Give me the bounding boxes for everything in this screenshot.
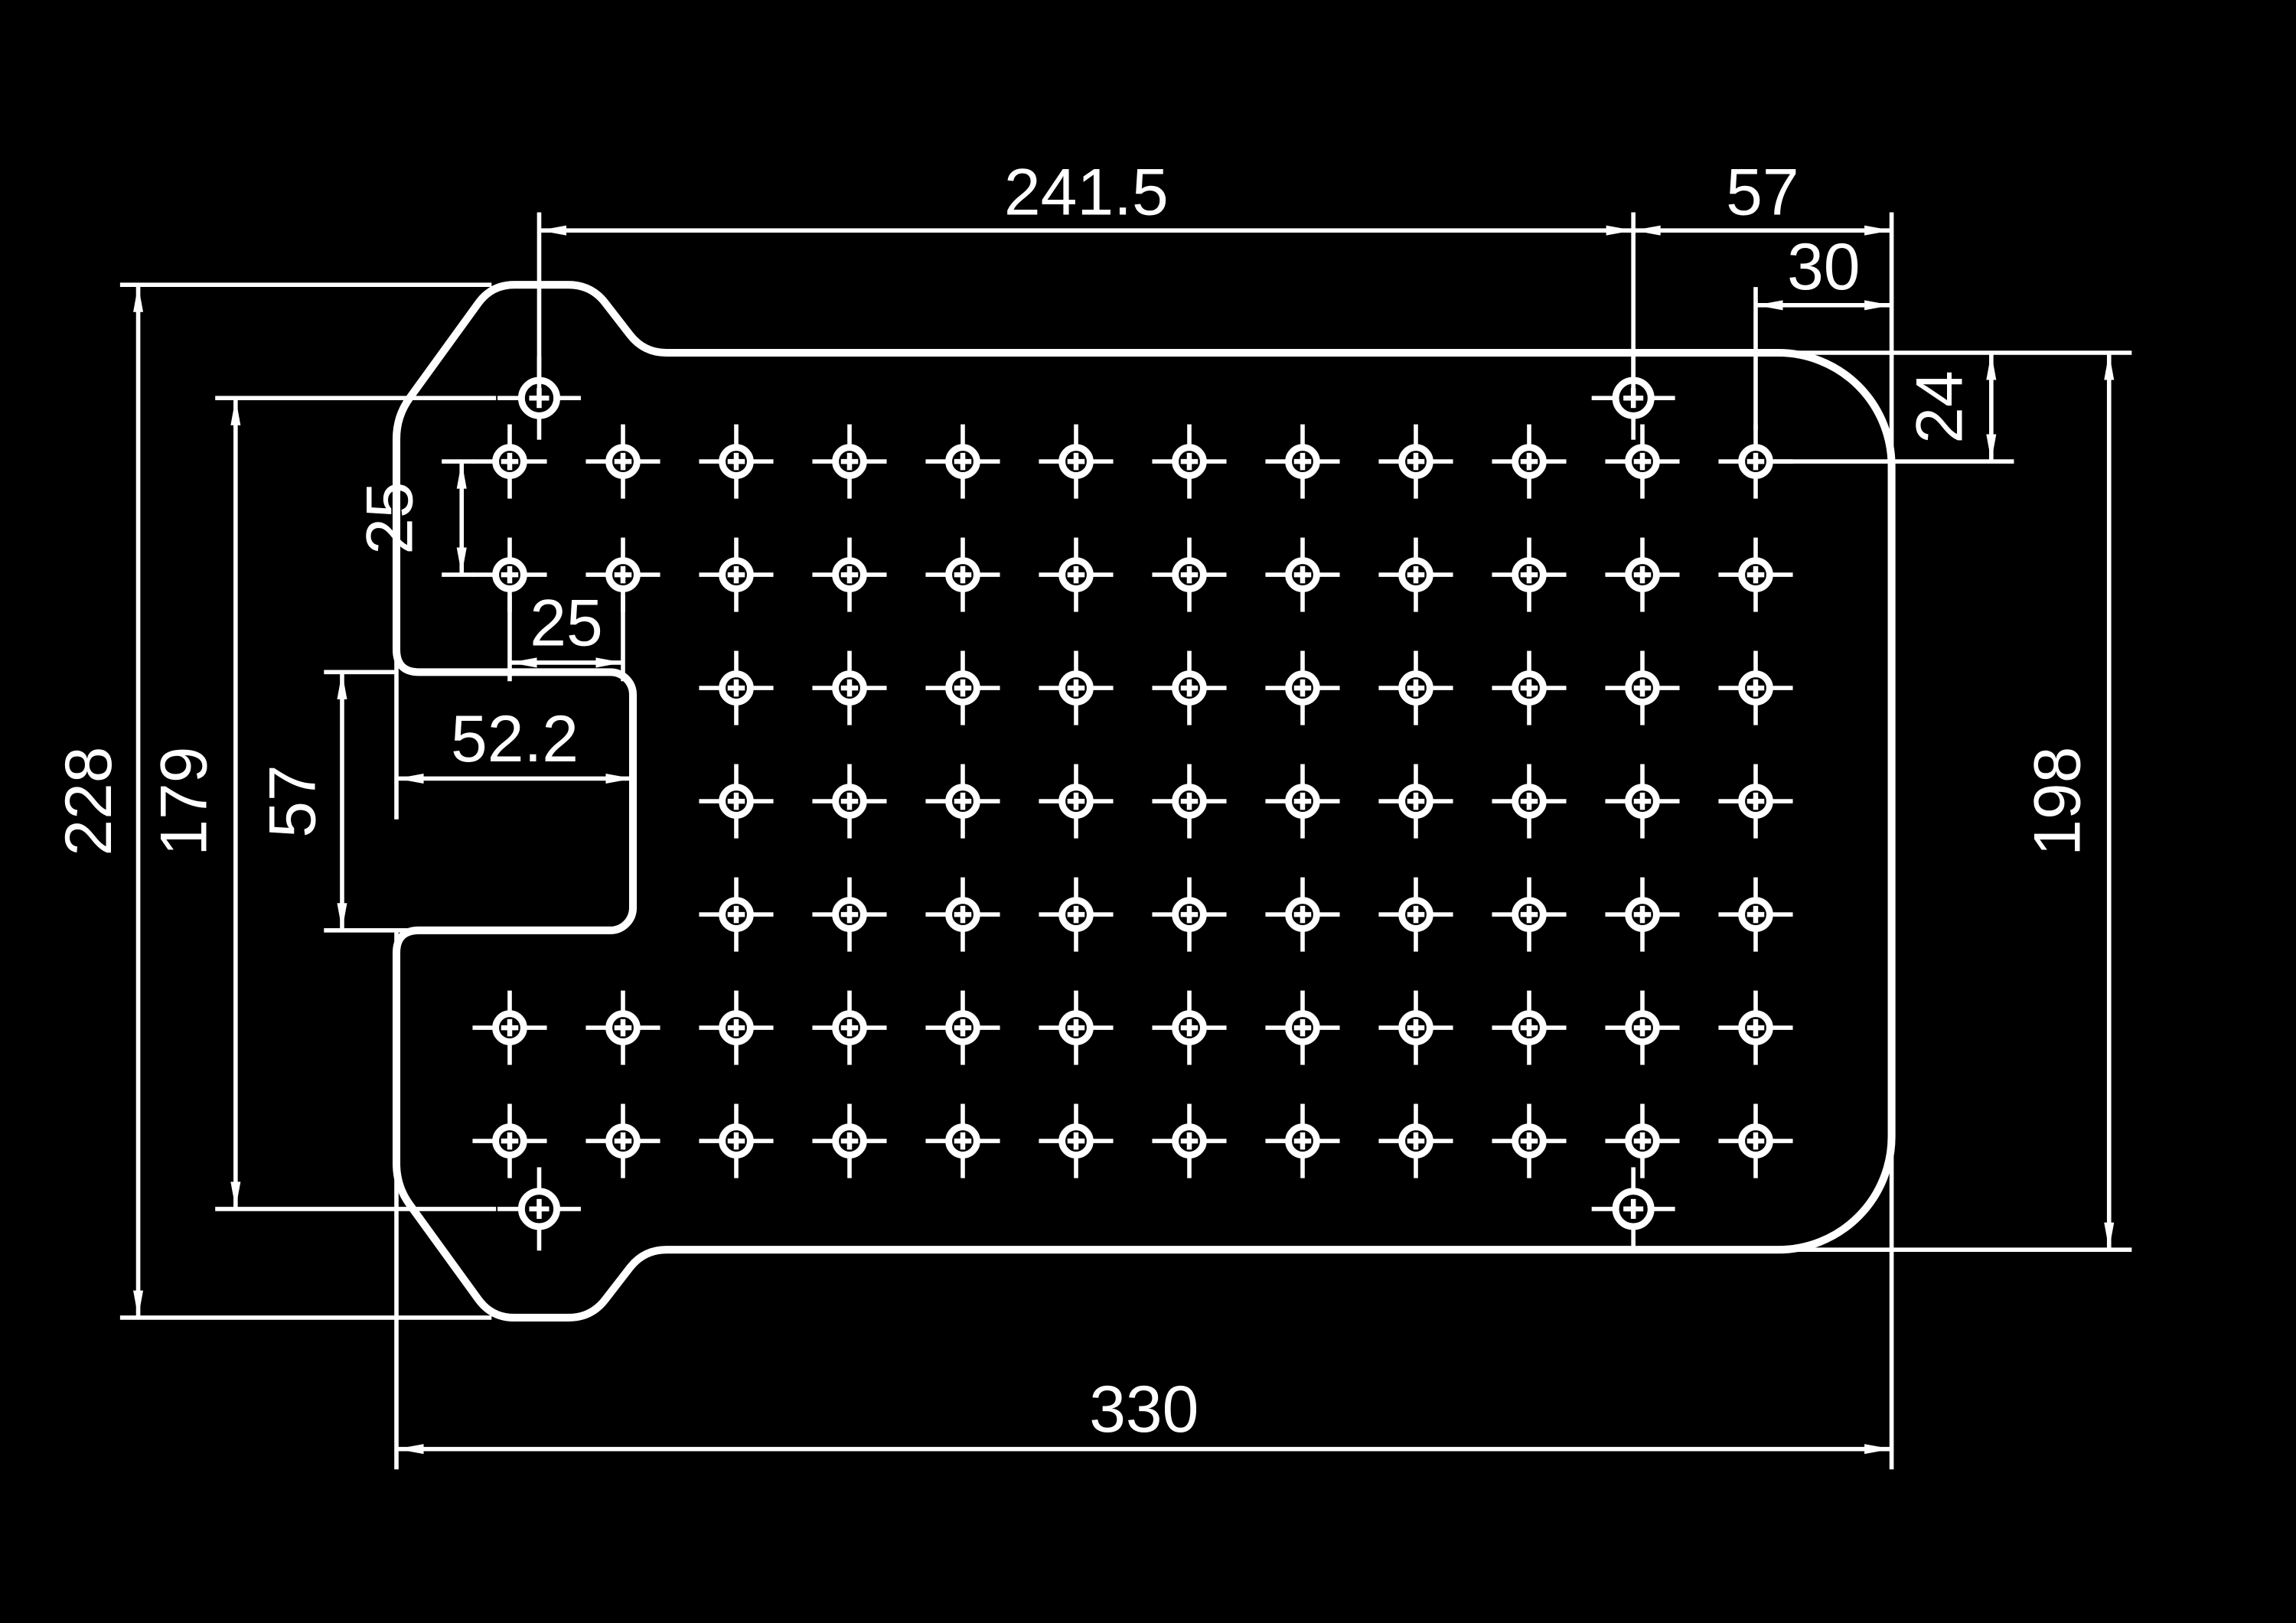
dimension-label: 25 bbox=[354, 481, 427, 554]
dimension-label: 25 bbox=[530, 586, 602, 660]
dimension-label: 24 bbox=[1903, 370, 1976, 443]
technical-drawing-plate: 241.5573052.225330228179572524198 bbox=[0, 0, 2296, 1623]
dimension-label: 198 bbox=[2020, 746, 2094, 855]
dimension-label: 179 bbox=[147, 746, 220, 855]
dimension-label: 241.5 bbox=[1004, 155, 1169, 229]
dimension-label: 57 bbox=[1726, 155, 1799, 229]
dimension-label: 228 bbox=[52, 746, 126, 855]
cad-drawing-canvas: 241.5573052.225330228179572524198 bbox=[0, 0, 2296, 1623]
dimension-label: 330 bbox=[1089, 1373, 1199, 1446]
dimension-label: 57 bbox=[256, 764, 329, 837]
dimension-label: 30 bbox=[1787, 230, 1860, 304]
dimension-label: 52.2 bbox=[451, 702, 579, 776]
